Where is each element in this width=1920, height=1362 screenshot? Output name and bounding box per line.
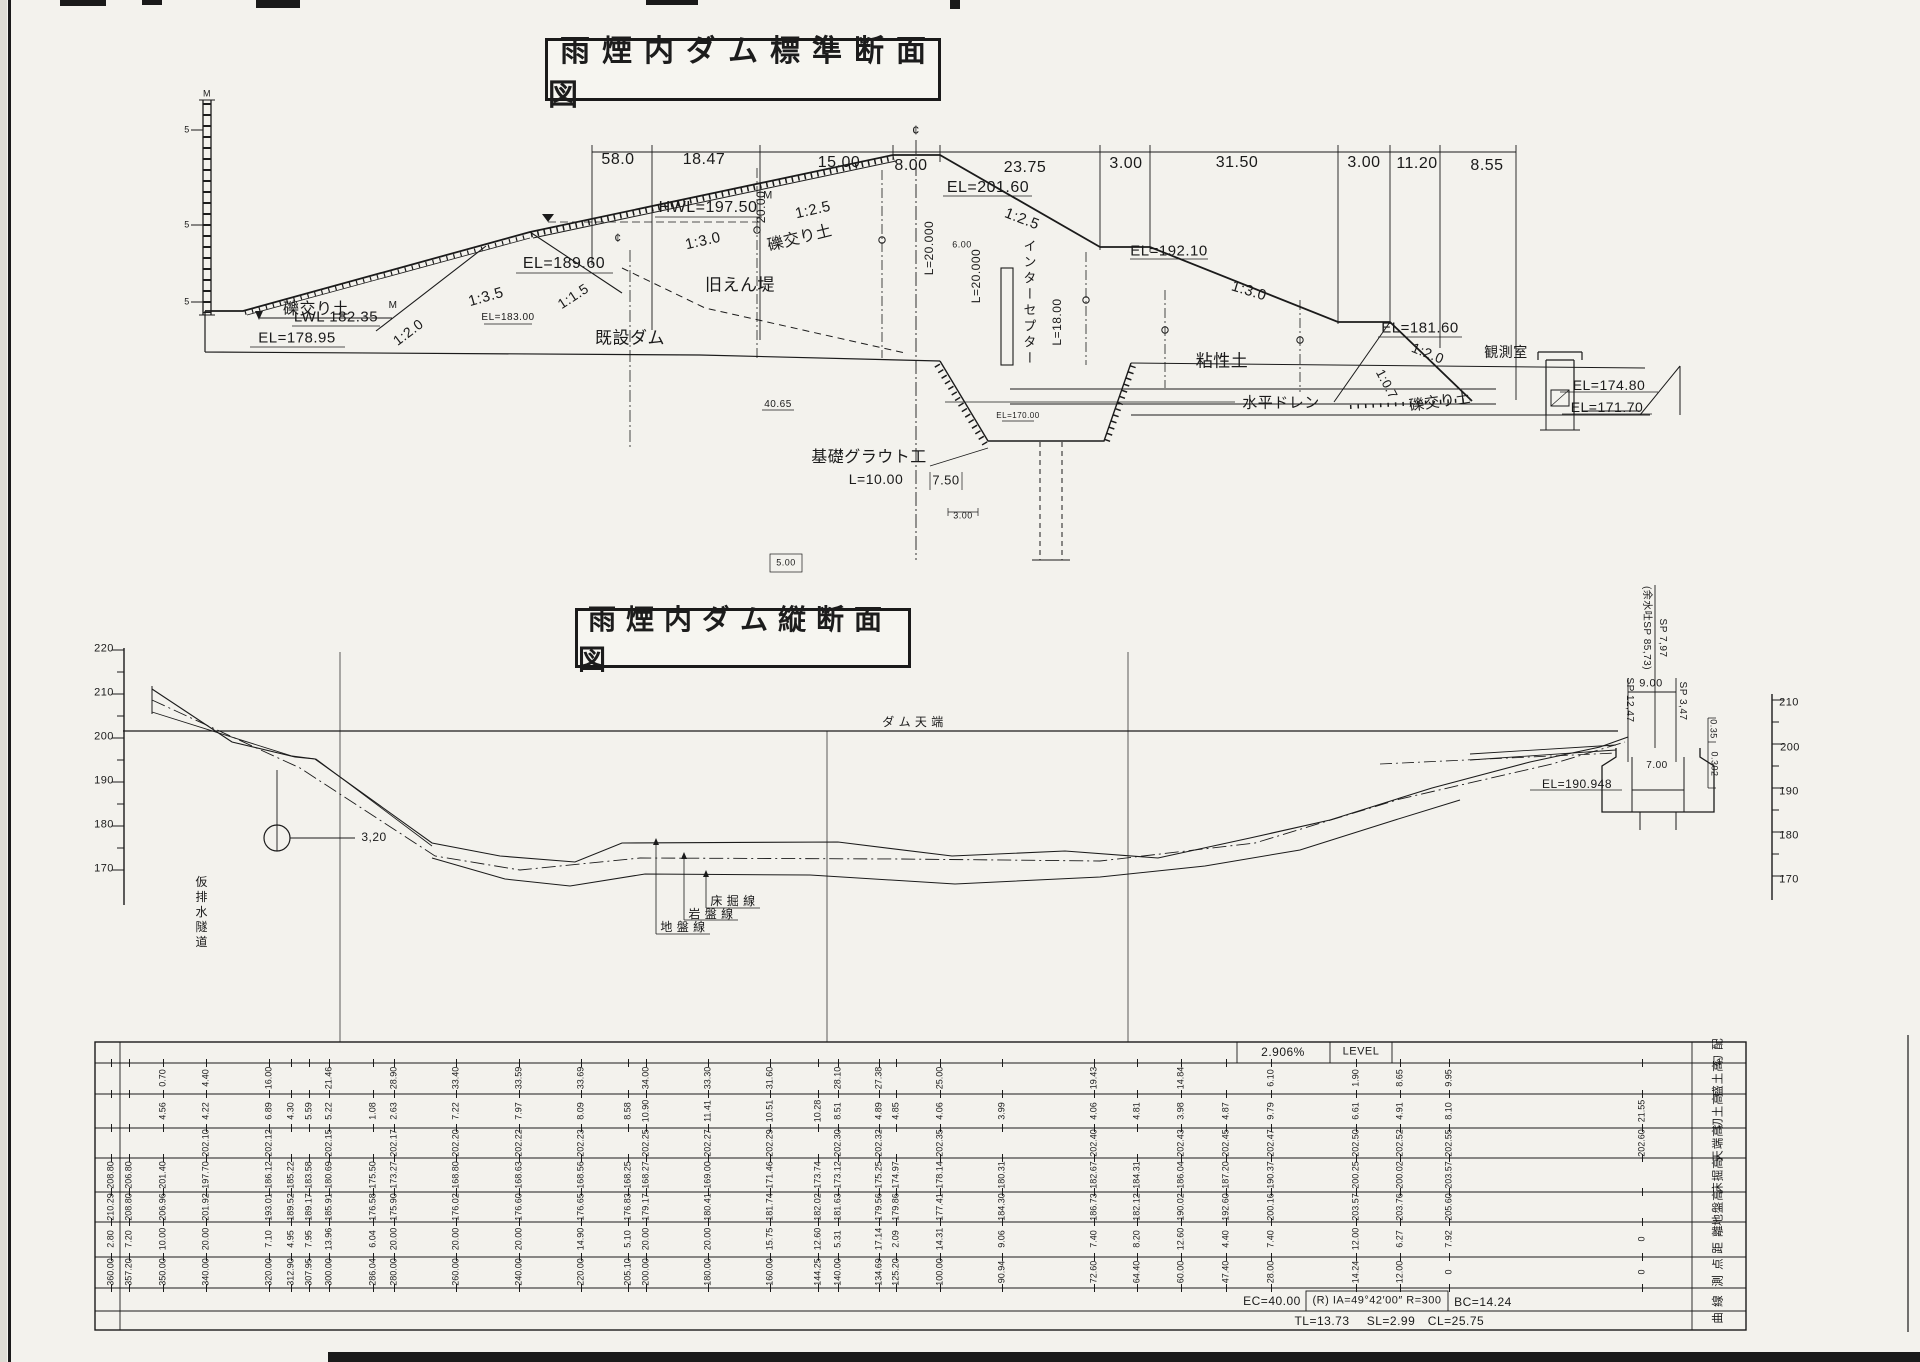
table-value: 28.10: [834, 1067, 843, 1090]
table-tick: [329, 1124, 330, 1132]
table-value: 179.17: [642, 1193, 651, 1221]
table-tick: [129, 1188, 130, 1196]
table-value: 12.60: [1177, 1228, 1186, 1251]
table-tick: [394, 1059, 395, 1067]
table-value: 300.00: [325, 1258, 334, 1286]
axisR-170: 170: [1779, 875, 1799, 886]
table-value: 140.00: [834, 1258, 843, 1286]
table-value: 14.90: [577, 1228, 586, 1251]
table-value: 20.00: [202, 1228, 211, 1251]
table-tick: [581, 1253, 582, 1261]
table-tick: [1226, 1154, 1227, 1162]
table-value: 10.28: [814, 1100, 823, 1123]
table-tick: [838, 1124, 839, 1132]
table-tick: [770, 1154, 771, 1162]
table-tick: [1449, 1059, 1450, 1067]
table-tick: [456, 1253, 457, 1261]
table-tick: [163, 1124, 164, 1132]
table-tick: [1181, 1188, 1182, 1196]
table-tick: [309, 1059, 310, 1067]
table-value: 202.60: [1638, 1129, 1647, 1157]
table-value: 286.04: [369, 1258, 378, 1286]
table-tick: [309, 1090, 310, 1098]
table-value: 202.40: [1090, 1129, 1099, 1157]
dim-l-18-00: L=18.00: [1051, 298, 1063, 345]
table-tick: [456, 1154, 457, 1162]
table-tick: [269, 1090, 270, 1098]
table-tick: [163, 1059, 164, 1067]
table-tick: [770, 1124, 771, 1132]
table-tick: [456, 1284, 457, 1292]
table-tick: [1271, 1253, 1272, 1261]
table-value: 203.76: [1396, 1193, 1405, 1221]
table-value: 10.90: [642, 1100, 651, 1123]
table-value: 20.00: [704, 1228, 713, 1251]
dim-40-65: 40.65: [764, 400, 792, 410]
table-tick: [628, 1059, 629, 1067]
table-tick: [770, 1253, 771, 1261]
table-value: 5.31: [834, 1230, 843, 1248]
table-value: 202.20: [452, 1129, 461, 1157]
table-tick: [896, 1059, 897, 1067]
table-tick: [1002, 1154, 1003, 1162]
table-tick: [581, 1284, 582, 1292]
table-value: 360.00: [107, 1258, 116, 1286]
table-tick: [1181, 1253, 1182, 1261]
table-tick: [770, 1090, 771, 1098]
dim-6-00: 6.00: [952, 241, 972, 250]
table-tick: [269, 1188, 270, 1196]
table-value: 185.91: [325, 1193, 334, 1221]
lbl-el-170-00: EL=170.00: [996, 412, 1039, 420]
table-tick: [1449, 1090, 1450, 1098]
table-tick: [129, 1253, 130, 1261]
table-value: 307.95: [305, 1258, 314, 1286]
table-tick: [1449, 1218, 1450, 1226]
table-value: 183.58: [305, 1161, 314, 1189]
table-tick: [708, 1154, 709, 1162]
table-tick: [879, 1284, 880, 1292]
dim-0-35: 0.35: [1709, 719, 1718, 739]
lbl-sp-7-97: SP 7,97: [1657, 619, 1667, 658]
table-value: 200.00: [642, 1258, 651, 1286]
lbl-el-181-60: EL=181.60: [1381, 321, 1459, 336]
table-value: 72.60: [1090, 1261, 1099, 1284]
title-longitudinal-section: 雨煙内ダム縦断面図: [575, 608, 911, 668]
table-tick: [1642, 1188, 1643, 1196]
table-value: 3.98: [1177, 1102, 1186, 1120]
table-tick: [1356, 1253, 1357, 1261]
table-value: 174.97: [892, 1161, 901, 1189]
tbl-level: LEVEL: [1343, 1047, 1380, 1058]
table-value: 33.59: [515, 1067, 524, 1090]
table-tick: [1642, 1124, 1643, 1132]
table-tick: [818, 1154, 819, 1162]
table-tick: [1356, 1124, 1357, 1132]
table-tick: [1400, 1253, 1401, 1261]
longitudinal-linework: [112, 585, 1784, 1042]
table-value: 12.00: [1352, 1228, 1361, 1251]
table-tick: [269, 1154, 270, 1162]
table-value: 182.67: [1090, 1161, 1099, 1189]
table-tick: [1271, 1059, 1272, 1067]
table-tick: [373, 1284, 374, 1292]
table-tick: [1449, 1284, 1450, 1292]
table-tick: [708, 1253, 709, 1261]
table-tick: [628, 1090, 629, 1098]
table-tick: [628, 1284, 629, 1292]
table-value: 17.14: [875, 1228, 884, 1251]
table-value: 34.00: [642, 1067, 651, 1090]
table-tick: [646, 1059, 647, 1067]
scale-5-c: 5: [184, 298, 190, 307]
scale-m-top: M: [203, 90, 211, 99]
table-value: 202.52: [1396, 1129, 1405, 1157]
table-tick: [818, 1124, 819, 1132]
table-tick: [269, 1124, 270, 1132]
table-tick: [206, 1218, 207, 1226]
table-value: 9.95: [1445, 1069, 1454, 1087]
table-tick: [1449, 1124, 1450, 1132]
table-value: 8.10: [1445, 1102, 1454, 1120]
table-tick: [940, 1059, 941, 1067]
table-tick: [111, 1218, 112, 1226]
table-tick: [1271, 1124, 1272, 1132]
table-value: 202.17: [390, 1129, 399, 1157]
lbl-ground-line: 地 盤 線: [660, 921, 705, 933]
table-value: 6.27: [1396, 1230, 1405, 1248]
table-value: 10.51: [766, 1100, 775, 1123]
table-value: 312.90: [287, 1258, 296, 1286]
table-tick: [1002, 1124, 1003, 1132]
table-tick: [646, 1090, 647, 1098]
table-tick: [373, 1059, 374, 1067]
table-value: 186.04: [1177, 1161, 1186, 1189]
table-tick: [708, 1218, 709, 1226]
table-tick: [1226, 1284, 1227, 1292]
table-tick: [1449, 1253, 1450, 1261]
table-tick: [394, 1188, 395, 1196]
table-value: 125.20: [892, 1258, 901, 1286]
table-value: 181.63: [834, 1193, 843, 1221]
table-value: 6.04: [369, 1230, 378, 1248]
table-tick: [708, 1284, 709, 1292]
table-value: 176.83: [624, 1193, 633, 1221]
table-value: 20.00: [515, 1228, 524, 1251]
table-tick: [1094, 1218, 1095, 1226]
dim-3-20: 3,20: [361, 831, 386, 843]
table-value: 4.56: [159, 1102, 168, 1120]
axisL-180: 180: [94, 820, 114, 831]
table-value: 176.58: [369, 1193, 378, 1221]
tbl-gradient: 2.906%: [1261, 1046, 1305, 1058]
table-tick: [206, 1253, 207, 1261]
table-value: 4.06: [936, 1102, 945, 1120]
table-value: 20.00: [390, 1228, 399, 1251]
table-tick: [1271, 1188, 1272, 1196]
table-tick: [329, 1253, 330, 1261]
table-tick: [309, 1284, 310, 1292]
lbl-spillway-sp: (余水吐SP 85,73): [1641, 586, 1651, 670]
table-tick: [1181, 1154, 1182, 1162]
table-tick: [940, 1218, 941, 1226]
table-tick: [879, 1059, 880, 1067]
table-value: 189.52: [287, 1193, 296, 1221]
dim-l-20-000-a: L=20.000: [923, 221, 935, 275]
table-tick: [309, 1218, 310, 1226]
table-value: 1.90: [1352, 1069, 1361, 1087]
table-value: 202.50: [1352, 1129, 1361, 1157]
table-tick: [394, 1218, 395, 1226]
table-tick: [373, 1154, 374, 1162]
table-tick: [163, 1284, 164, 1292]
table-tick: [1226, 1218, 1227, 1226]
table-value: 27.38: [875, 1067, 884, 1090]
table-tick: [1271, 1154, 1272, 1162]
table-value: 8.58: [624, 1102, 633, 1120]
table-tick: [269, 1059, 270, 1067]
table-value: 182.12: [1133, 1193, 1142, 1221]
mat-gravel-left: 礫交り土: [283, 302, 349, 318]
table-tick: [309, 1188, 310, 1196]
table-value: 7.20: [125, 1230, 134, 1248]
table-value: 16.00: [265, 1067, 274, 1090]
dim-7-50: 7.50: [932, 474, 959, 487]
table-value: 14.84: [1177, 1067, 1186, 1090]
table-tick: [896, 1253, 897, 1261]
table-tick: [1271, 1090, 1272, 1098]
table-tick: [818, 1253, 819, 1261]
scale-5-a: 5: [184, 126, 190, 135]
table-tick: [1181, 1218, 1182, 1226]
table-tick: [1002, 1059, 1003, 1067]
table-value: 187.20: [1222, 1161, 1231, 1189]
dim-15-00: 15.00: [818, 155, 861, 171]
table-value: 193.01: [265, 1193, 274, 1221]
lbl-sp-12-47: SP 12,47: [1624, 678, 1634, 723]
table-tick: [896, 1154, 897, 1162]
table-value: 203.57: [1445, 1161, 1454, 1189]
table-value: 180.41: [704, 1193, 713, 1221]
table-value: 175.25: [875, 1161, 884, 1189]
table-tick: [456, 1090, 457, 1098]
lbl-dam-crest: ダ ム 天 端: [882, 716, 944, 728]
scale-5-b: 5: [184, 221, 190, 230]
table-tick: [1137, 1253, 1138, 1261]
lbl-rock-line: 岩 盤 線: [688, 908, 733, 920]
table-tick: [1181, 1124, 1182, 1132]
table-tick: [581, 1188, 582, 1196]
table-value: 4.95: [287, 1230, 296, 1248]
table-row-label: 曲 線: [1713, 1294, 1725, 1323]
table-tick: [1356, 1218, 1357, 1226]
table-tick: [111, 1253, 112, 1261]
table-tick: [1642, 1090, 1643, 1098]
table-value: 2.63: [390, 1102, 399, 1120]
table-tick: [879, 1188, 880, 1196]
axisR-180: 180: [1779, 831, 1799, 842]
table-tick: [129, 1154, 130, 1162]
dim-9-00: 9.00: [1639, 679, 1662, 690]
table-value: 181.74: [766, 1193, 775, 1221]
dim-3-00-a: 3.00: [1109, 156, 1142, 172]
table-tick: [838, 1253, 839, 1261]
table-value: 2.09: [892, 1230, 901, 1248]
table-tick: [879, 1154, 880, 1162]
table-value: 8.20: [1133, 1230, 1142, 1248]
table-tick: [111, 1124, 112, 1132]
table-tick: [206, 1059, 207, 1067]
table-value: 197.70: [202, 1161, 211, 1189]
curve-ia: (R) IA=49°42′00″ R=300: [1313, 1296, 1442, 1307]
table-tick: [163, 1090, 164, 1098]
axisL-170: 170: [94, 864, 114, 875]
table-value: 208.80: [125, 1193, 134, 1221]
lbl-grout-length: L=10.00: [849, 472, 904, 486]
table-value: 168.25: [624, 1161, 633, 1189]
table-value: 2.80: [107, 1230, 116, 1248]
table-tick: [1094, 1154, 1095, 1162]
table-value: 5.22: [325, 1102, 334, 1120]
table-value: 175.50: [369, 1161, 378, 1189]
table-value: 4.91: [1396, 1102, 1405, 1120]
table-tick: [1137, 1124, 1138, 1132]
table-value: 33.69: [577, 1067, 586, 1090]
table-value: 184.31: [1133, 1161, 1142, 1189]
table-value: 320.00: [265, 1258, 274, 1286]
axisR-210: 210: [1779, 698, 1799, 709]
table-tick: [818, 1218, 819, 1226]
dim-3-00-b: 3.00: [1347, 155, 1380, 171]
table-tick: [896, 1124, 897, 1132]
table-tick: [456, 1218, 457, 1226]
table-value: 185.22: [287, 1161, 296, 1189]
lbl-el-190-948: EL=190.948: [1542, 778, 1612, 790]
table-value: 186.73: [1090, 1193, 1099, 1221]
table-tick: [628, 1124, 629, 1132]
table-value: 13.96: [325, 1228, 334, 1251]
table-tick: [163, 1154, 164, 1162]
title-longitudinal-section-text: 雨煙内ダム縦断面図: [578, 598, 908, 678]
table-tick: [770, 1059, 771, 1067]
table-value: 202.32: [875, 1129, 884, 1157]
table-value: 8.51: [834, 1102, 843, 1120]
table-value: 203.57: [1352, 1193, 1361, 1221]
table-tick: [291, 1218, 292, 1226]
axisL-210: 210: [94, 688, 114, 699]
table-value: 200.16: [1267, 1193, 1276, 1221]
table-tick: [1002, 1284, 1003, 1292]
table-value: 28.90: [390, 1067, 399, 1090]
table-tick: [291, 1059, 292, 1067]
table-tick: [1449, 1188, 1450, 1196]
table-tick: [628, 1188, 629, 1196]
table-value: 21.55: [1638, 1100, 1647, 1123]
table-tick: [896, 1090, 897, 1098]
table-tick: [708, 1188, 709, 1196]
table-tick: [129, 1090, 130, 1098]
table-row-label: 測 点: [1713, 1257, 1725, 1286]
table-tick: [1400, 1090, 1401, 1098]
axisR-190: 190: [1779, 787, 1799, 798]
table-value: 260.00: [452, 1258, 461, 1286]
table-tick: [1094, 1188, 1095, 1196]
table-tick: [291, 1154, 292, 1162]
table-tick: [940, 1188, 941, 1196]
table-tick: [456, 1188, 457, 1196]
table-value: 0: [1638, 1236, 1647, 1241]
table-tick: [129, 1124, 130, 1132]
table-tick: [1137, 1284, 1138, 1292]
table-value: 10.00: [159, 1228, 168, 1251]
table-tick: [373, 1124, 374, 1132]
table-value: 340.00: [202, 1258, 211, 1286]
table-tick: [111, 1154, 112, 1162]
table-value: 177.41: [936, 1193, 945, 1221]
table-value: 7.95: [305, 1230, 314, 1248]
table-tick: [646, 1218, 647, 1226]
table-value: 4.30: [287, 1102, 296, 1120]
table-tick: [1181, 1284, 1182, 1292]
table-tick: [519, 1154, 520, 1162]
table-value: 202.23: [577, 1129, 586, 1157]
table-value: 90.94: [998, 1261, 1007, 1284]
table-tick: [129, 1218, 130, 1226]
table-value: 144.25: [814, 1258, 823, 1286]
table-value: 205.60: [1445, 1193, 1454, 1221]
table-tick: [291, 1188, 292, 1196]
table-value: 200.02: [1396, 1161, 1405, 1189]
lbl-el-174-80: EL=174.80: [1573, 378, 1646, 392]
table-tick: [879, 1253, 880, 1261]
table-tick: [1642, 1154, 1643, 1162]
lbl-interceptor: インターセプター: [1023, 239, 1036, 367]
table-tick: [206, 1090, 207, 1098]
curve-sl: SL=2.99: [1367, 1315, 1416, 1327]
table-value: 201.40: [159, 1161, 168, 1189]
table-value: 168.63: [515, 1161, 524, 1189]
table-tick: [708, 1090, 709, 1098]
table-tick: [1642, 1059, 1643, 1067]
table-tick: [519, 1253, 520, 1261]
dim-23-75: 23.75: [1004, 160, 1047, 176]
axisL-200: 200: [94, 732, 114, 743]
table-tick: [206, 1154, 207, 1162]
table-value: 28.00: [1267, 1261, 1276, 1284]
table-tick: [1226, 1253, 1227, 1261]
table-value: 14.24: [1352, 1261, 1361, 1284]
table-tick: [940, 1284, 941, 1292]
curve-bc: BC=14.24: [1454, 1296, 1512, 1308]
lbl-el-183-00: EL=183.00: [481, 313, 534, 323]
lbl-el-201-60: EL=201.60: [947, 180, 1029, 196]
table-tick: [456, 1059, 457, 1067]
dim-3-00-c: 3.00: [953, 512, 973, 521]
table-tick: [646, 1253, 647, 1261]
lbl-el-171-70: EL=171.70: [1571, 400, 1644, 414]
table-value: 206.96: [159, 1193, 168, 1221]
table-tick: [269, 1253, 270, 1261]
table-tick: [581, 1218, 582, 1226]
table-tick: [1226, 1124, 1227, 1132]
table-value: 20.00: [452, 1228, 461, 1251]
table-value: 25.00: [936, 1067, 945, 1090]
table-tick: [879, 1218, 880, 1226]
table-value: 4.06: [1090, 1102, 1099, 1120]
table-tick: [1642, 1218, 1643, 1226]
table-value: 173.74: [814, 1161, 823, 1189]
table-tick: [329, 1188, 330, 1196]
